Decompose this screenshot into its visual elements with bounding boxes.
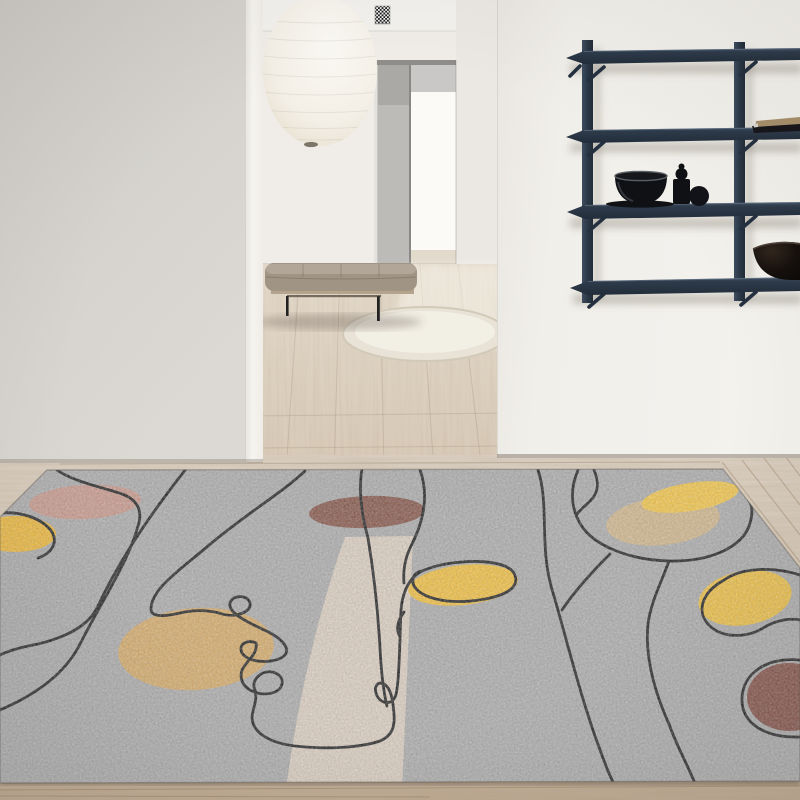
- vignette-overlay: [0, 0, 800, 800]
- scene: [0, 0, 800, 800]
- interior-photo: [0, 0, 800, 800]
